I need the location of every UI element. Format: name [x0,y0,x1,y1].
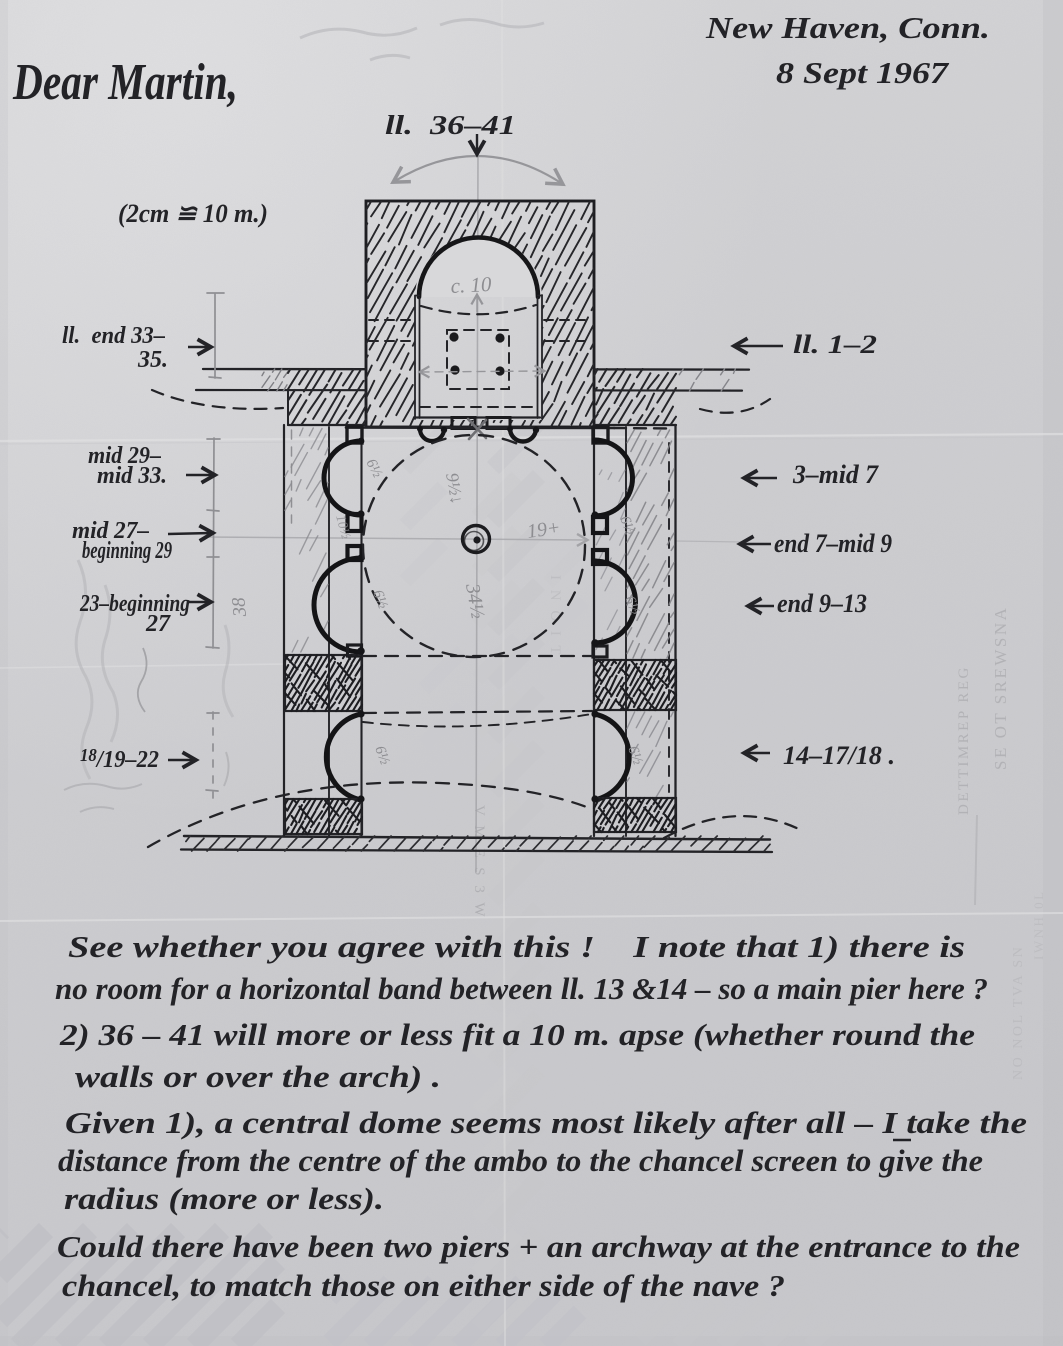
svg-text:IWNH 0L: IWNH 0L [1031,889,1046,960]
svg-text:ll. 36–41: ll. 36–41 [385,110,516,140]
svg-text:ll. end 33–: ll. end 33– [62,323,165,349]
svg-text:walls or over the arch) .: walls or over the arch) . [75,1059,441,1094]
svg-text:ll. 1–2: ll. 1–2 [793,330,877,359]
svg-text:distance from the centre of th: distance from the centre of the ambo to … [58,1143,983,1178]
svg-text:3–mid 7: 3–mid 7 [792,460,879,489]
svg-text:2) 36 – 41 will more or less: 2) 36 – 41 will more or less fit a 10 m.… [59,1017,975,1052]
svg-text:beginning 29: beginning 29 [82,538,172,564]
svg-text:NO NOL TVA SN: NO NOL TVA SN [1011,945,1026,1080]
svg-text:SE OT SREWSNA: SE OT SREWSNA [991,606,1010,770]
svg-text:38: 38 [228,596,251,618]
svg-text:DETTIMREP REG: DETTIMREP REG [956,665,972,815]
svg-text:chancel, to match those on eit: chancel, to match those on either side o… [62,1268,785,1303]
svg-text:27: 27 [145,611,171,637]
svg-text:See whether you agree with thi: See whether you agree with this ! I note… [68,929,965,964]
svg-text:14–17/18 .: 14–17/18 . [783,741,895,770]
svg-text:mid 33.: mid 33. [97,463,167,489]
svg-text:Dear Martin,: Dear Martin, [12,54,238,111]
svg-text:19+: 19+ [526,517,562,543]
svg-text:35.: 35. [137,347,168,373]
svg-text:c. 10: c. 10 [450,272,493,298]
svg-text:end 7–mid 9: end 7–mid 9 [774,529,892,558]
svg-text:23–beginning: 23–beginning [79,591,190,617]
svg-text:end 9–13: end 9–13 [777,589,867,618]
svg-text:radius (more or less).: radius (more or less). [64,1181,384,1216]
svg-text:V M E S 3 W: V M E S 3 W [471,805,487,920]
svg-text:no room for a horizontal band: no room for a horizontal band between ll… [55,971,988,1006]
svg-text:New Haven, Conn.: New Haven, Conn. [705,10,990,45]
svg-text:(2cm ≌ 10 m.): (2cm ≌ 10 m.) [118,199,268,228]
svg-text:Could there have been two pier: Could there have been two piers + an arc… [57,1229,1020,1264]
svg-text:Given 1), a central dome seem: Given 1), a central dome seems most like… [65,1105,1027,1140]
svg-text:8 Sept 1967: 8 Sept 1967 [776,55,950,90]
